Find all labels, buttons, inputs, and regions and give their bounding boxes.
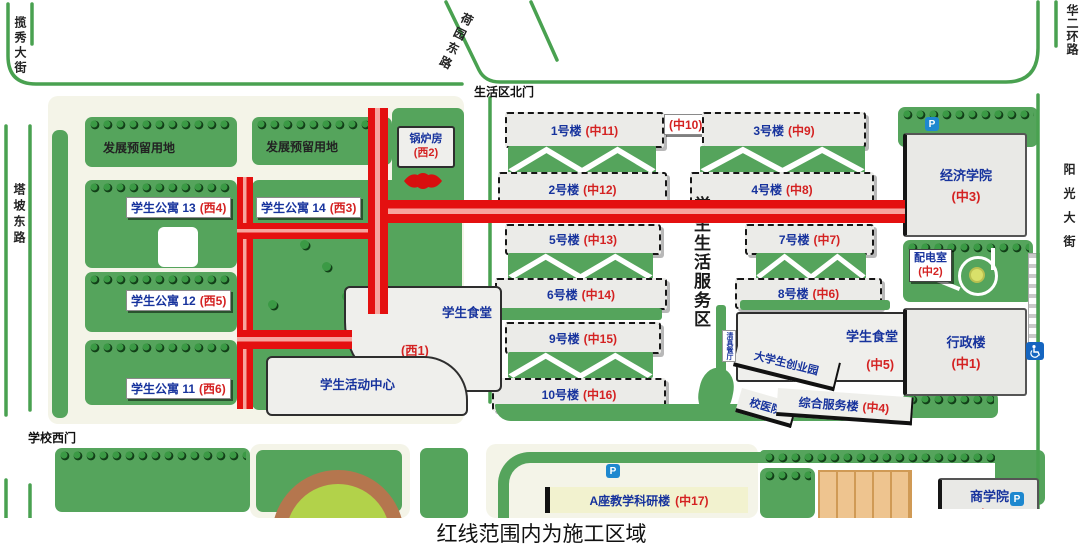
canteen5-name: 学生食堂 bbox=[846, 326, 898, 345]
construction-line-horizontal-main bbox=[388, 200, 905, 223]
apt11-label: 学生公寓 11 (西6) bbox=[126, 378, 231, 399]
map-edge-fade bbox=[932, 509, 1042, 518]
construction-line-horizontal-lower bbox=[237, 330, 352, 349]
apt13-code: (西4) bbox=[200, 199, 227, 216]
west-canteen-name: 学生食堂 bbox=[442, 302, 492, 321]
apt14-label: 学生公寓 14 (西3) bbox=[256, 197, 361, 218]
apt14-code: (西3) bbox=[330, 199, 357, 216]
service-building-name: 综合服务楼 bbox=[798, 393, 859, 414]
map-caption: 红线范围内为施工区域 bbox=[0, 518, 1083, 547]
boiler-building: 锅炉房 (西2) bbox=[397, 126, 455, 168]
substation-name: 配电室 bbox=[914, 251, 947, 265]
accessibility-icon bbox=[1026, 342, 1044, 360]
parking-icon: P bbox=[606, 464, 620, 478]
apt12-label: 学生公寓 12 (西5) bbox=[126, 290, 231, 311]
street-lanxiu: 揽秀大街 bbox=[12, 16, 29, 76]
north-gate-label: 生活区北门 bbox=[474, 83, 534, 100]
service-building-code: (中4) bbox=[862, 397, 890, 416]
admin-code: (中1) bbox=[952, 353, 981, 372]
map-area: 发展预留用地 发展预留用地 锅炉房 (西2) 学生食堂 (西1) 学生活动中心 … bbox=[0, 0, 1083, 518]
admin-building: 行政楼 (中1) bbox=[903, 308, 1027, 396]
parking-icon: P bbox=[1010, 492, 1024, 506]
boiler-code: (西2) bbox=[414, 147, 438, 161]
red-eye-icon bbox=[402, 168, 444, 199]
economics-building: 经济学院 (中3) bbox=[903, 133, 1027, 237]
street-yangguang: 阳光大街 bbox=[1061, 163, 1078, 259]
block-a-code: (中17) bbox=[675, 492, 708, 509]
economics-code: (中3) bbox=[952, 186, 981, 205]
block-a-name: A座教学科研楼 bbox=[589, 492, 670, 509]
construction-line-vertical-east bbox=[368, 108, 388, 314]
parking-icon: P bbox=[925, 117, 939, 131]
apt14-name: 学生公寓 14 bbox=[261, 199, 326, 216]
halal-canteen-label: 清真餐厅 bbox=[722, 330, 736, 362]
construction-line-horizontal-upper bbox=[237, 223, 368, 239]
boiler-name: 锅炉房 bbox=[410, 133, 443, 147]
street-tapo: 塔坡东路 bbox=[11, 183, 28, 247]
west-gate-label: 学校西门 bbox=[28, 429, 76, 446]
apt13-name: 学生公寓 13 bbox=[131, 199, 196, 216]
activity-center-name: 学生活动中心 bbox=[320, 374, 395, 393]
activity-center-building: 学生活动中心 bbox=[266, 356, 468, 416]
apt12-code: (西5) bbox=[200, 292, 227, 309]
construction-line-vertical-west bbox=[237, 177, 253, 409]
admin-name: 行政楼 bbox=[946, 332, 985, 351]
block-a-building: A座教学科研楼 (中17) bbox=[545, 487, 748, 513]
canteen5-code: (中5) bbox=[866, 354, 894, 373]
campus-map: 发展预留用地 发展预留用地 锅炉房 (西2) 学生食堂 (西1) 学生活动中心 … bbox=[0, 0, 1083, 547]
economics-name: 经济学院 bbox=[940, 165, 992, 184]
business-name: 商学院 bbox=[970, 486, 1009, 505]
apt13-label: 学生公寓 13 (西4) bbox=[126, 197, 231, 218]
apt11-name: 学生公寓 11 bbox=[131, 380, 195, 397]
substation-code: (中2) bbox=[914, 265, 947, 279]
substation-label: 配电室 (中2) bbox=[909, 249, 952, 282]
apt12-name: 学生公寓 12 bbox=[131, 292, 196, 309]
apt11-code: (西6) bbox=[199, 380, 226, 397]
street-huaerhuan: 华二环路 bbox=[1064, 4, 1081, 56]
